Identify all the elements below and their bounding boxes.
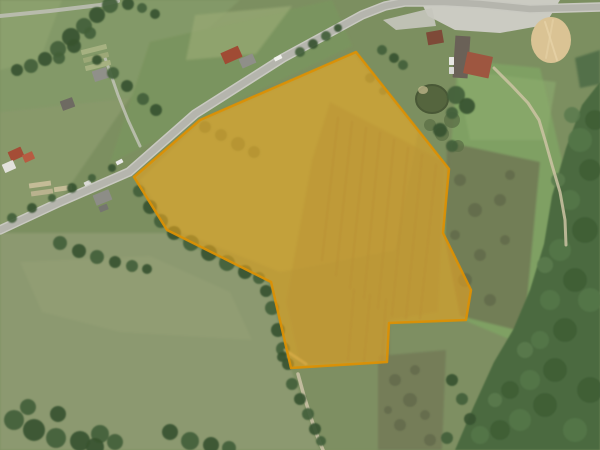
tree-cluster: [108, 164, 116, 172]
tree-cluster: [433, 123, 447, 137]
tree-cluster: [107, 67, 119, 79]
pond-bank: [418, 86, 428, 94]
tree-cluster: [126, 260, 138, 272]
scrub-mottle: [484, 294, 496, 306]
scrub-mottle: [420, 410, 430, 420]
tree-cluster: [464, 413, 476, 425]
scrub-mottle: [468, 203, 482, 217]
tree-cluster: [308, 39, 318, 49]
forest-canopy-blob: [520, 370, 540, 390]
tree-cluster: [27, 203, 37, 213]
tree-cluster: [459, 98, 475, 114]
forest-canopy-blob: [563, 418, 587, 442]
tree-cluster: [142, 264, 152, 274]
tree-cluster: [4, 410, 24, 430]
tree-cluster: [456, 393, 468, 405]
tree-cluster: [89, 7, 105, 23]
forest-canopy-blob: [579, 159, 600, 181]
tree-cluster: [109, 256, 121, 268]
tree-cluster: [334, 24, 342, 32]
tree-cluster: [67, 183, 77, 193]
tree-cluster: [20, 399, 36, 415]
tree-cluster: [7, 213, 17, 223]
forest-canopy-blob: [488, 393, 502, 407]
tree-cluster: [137, 3, 147, 13]
tree-cluster: [88, 174, 96, 182]
tree-cluster: [377, 45, 387, 55]
forest-canopy-blob: [563, 268, 587, 292]
forest-canopy-blob: [540, 290, 560, 310]
tree-cluster: [121, 80, 133, 92]
tree-cluster: [72, 244, 86, 258]
tree-cluster: [446, 107, 458, 119]
tree-cluster: [389, 53, 399, 63]
forest-canopy-blob: [490, 420, 510, 440]
tree-cluster: [90, 250, 104, 264]
forest-canopy-blob: [531, 331, 549, 349]
vehicle: [449, 67, 454, 74]
tree-cluster: [302, 408, 314, 420]
tree-cluster: [53, 236, 67, 250]
tree-cluster: [46, 428, 66, 448]
tree-cluster: [181, 432, 199, 450]
tree-cluster: [398, 60, 408, 70]
forest-canopy-blob: [568, 128, 592, 152]
satellite-map[interactable]: [0, 0, 600, 450]
scrub-mottle: [500, 235, 510, 245]
forest-canopy-blob: [517, 342, 533, 358]
scrub-mottle: [403, 393, 417, 407]
map-viewport[interactable]: [0, 0, 600, 450]
tree-cluster: [441, 432, 453, 444]
forest-canopy-blob: [537, 257, 553, 273]
tree-cluster: [53, 52, 65, 64]
tree-cluster: [295, 47, 305, 57]
forest-canopy-blob: [564, 107, 580, 123]
forest-canopy-blob: [533, 393, 557, 417]
tree-cluster: [277, 352, 287, 362]
forest-canopy-blob: [553, 318, 577, 342]
scrub-mottle: [389, 374, 401, 386]
tree-cluster: [11, 64, 23, 76]
tree-cluster: [92, 55, 102, 65]
forest-canopy-blob: [501, 381, 519, 399]
vehicle: [449, 57, 454, 65]
tree-cluster: [309, 423, 321, 435]
forest-canopy-blob: [543, 358, 567, 382]
forest-canopy-blob: [509, 409, 531, 431]
tree-cluster: [107, 434, 123, 450]
tree-cluster: [84, 27, 96, 39]
scrub-mottle: [410, 365, 420, 375]
scrub-mottle: [494, 194, 506, 206]
tree-cluster: [294, 393, 306, 405]
scrub-mottle: [424, 434, 436, 446]
forest-canopy-blob: [572, 217, 598, 243]
tree-cluster: [260, 285, 272, 297]
building-roof: [426, 30, 444, 46]
scrub-mottle: [505, 170, 515, 180]
scrub-mottle: [384, 406, 392, 414]
tree-cluster: [150, 104, 162, 116]
scrub-mottle: [454, 174, 466, 186]
tree-cluster: [50, 406, 66, 422]
tree-cluster: [321, 31, 331, 41]
tree-cluster: [162, 424, 178, 440]
scrub-mottle: [450, 230, 460, 240]
tree-cluster: [446, 374, 458, 386]
forest-canopy-blob: [471, 426, 489, 444]
tree-cluster: [48, 194, 56, 202]
tree-cluster: [150, 9, 160, 19]
scrub-mottle: [394, 419, 406, 431]
tree-cluster: [67, 39, 81, 53]
tree-cluster: [446, 140, 458, 152]
tree-cluster: [137, 93, 149, 105]
tree-cluster: [24, 59, 38, 73]
tree-cluster: [23, 419, 45, 441]
forest-canopy-blob: [549, 239, 571, 261]
tree-cluster: [316, 436, 326, 446]
tree-cluster: [38, 52, 52, 66]
scrub-mottle: [474, 249, 486, 261]
tree-cluster: [286, 378, 298, 390]
